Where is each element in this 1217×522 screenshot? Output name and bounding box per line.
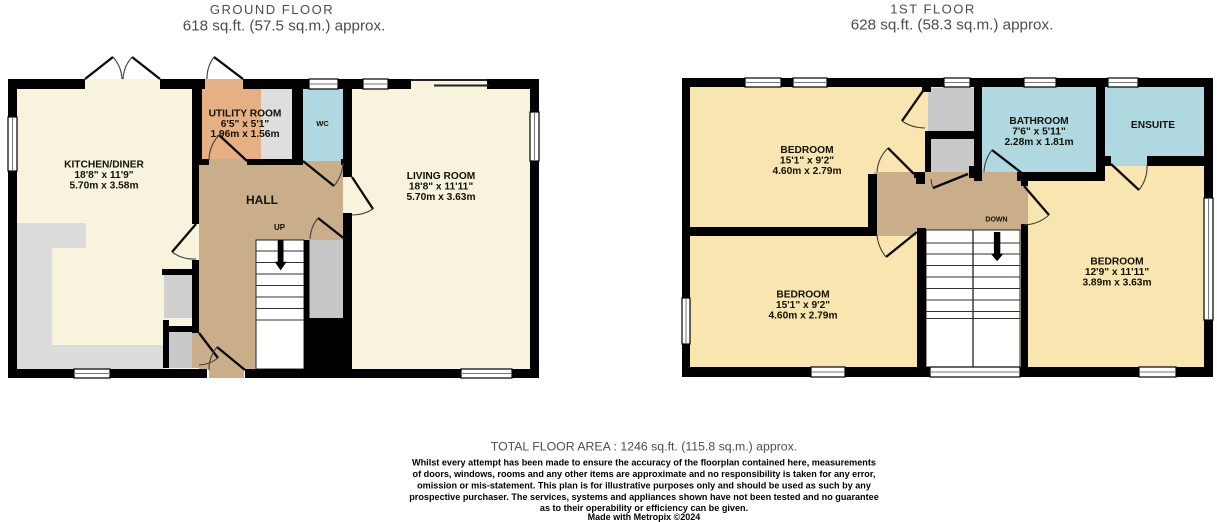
svg-text:15'1" x 9'2": 15'1" x 9'2" xyxy=(780,156,834,167)
svg-text:TOTAL FLOOR AREA : 1246 sq.ft.: TOTAL FLOOR AREA : 1246 sq.ft. (115.8 sq… xyxy=(491,440,797,454)
svg-text:omission or mis-statement. Thi: omission or mis-statement. This plan is … xyxy=(417,481,872,491)
svg-text:1ST FLOOR: 1ST FLOOR xyxy=(890,1,976,16)
svg-text:618 sq.ft. (57.5 sq.m.) approx: 618 sq.ft. (57.5 sq.m.) approx. xyxy=(183,17,386,34)
svg-text:prospective purchaser. The ser: prospective purchaser. The services, sys… xyxy=(409,492,879,502)
svg-text:LIVING ROOM: LIVING ROOM xyxy=(407,171,475,182)
svg-text:WC: WC xyxy=(316,119,329,128)
svg-text:3.89m x 3.63m: 3.89m x 3.63m xyxy=(1082,278,1151,289)
svg-text:HALL: HALL xyxy=(246,193,278,207)
svg-text:BEDROOM: BEDROOM xyxy=(776,290,829,301)
svg-text:BATHROOM: BATHROOM xyxy=(1009,116,1068,127)
svg-text:BEDROOM: BEDROOM xyxy=(1090,257,1143,268)
svg-text:DOWN: DOWN xyxy=(985,217,1007,224)
svg-text:5.70m x 3.58m: 5.70m x 3.58m xyxy=(69,181,138,192)
svg-text:1.96m x 1.56m: 1.96m x 1.56m xyxy=(210,129,279,140)
svg-text:BEDROOM: BEDROOM xyxy=(780,145,833,156)
svg-text:of doors, windows, rooms and a: of doors, windows, rooms and any other i… xyxy=(413,469,876,479)
svg-text:Made with Metropix ©2024: Made with Metropix ©2024 xyxy=(588,512,701,522)
svg-text:5.70m x 3.63m: 5.70m x 3.63m xyxy=(406,192,475,203)
svg-text:18'8" x 11'9": 18'8" x 11'9" xyxy=(74,170,133,181)
svg-text:18'8" x 11'11": 18'8" x 11'11" xyxy=(409,181,474,192)
svg-text:7'6" x 5'11": 7'6" x 5'11" xyxy=(1012,127,1066,138)
svg-text:2.28m x 1.81m: 2.28m x 1.81m xyxy=(1004,137,1073,148)
svg-text:GROUND FLOOR: GROUND FLOOR xyxy=(210,2,334,17)
svg-text:12'9" x 11'11": 12'9" x 11'11" xyxy=(1085,267,1150,278)
svg-text:4.60m x 2.79m: 4.60m x 2.79m xyxy=(772,166,841,177)
svg-text:ENSUITE: ENSUITE xyxy=(1131,120,1175,131)
svg-text:4.60m x 2.79m: 4.60m x 2.79m xyxy=(768,311,837,322)
svg-text:15'1" x 9'2": 15'1" x 9'2" xyxy=(776,300,830,311)
svg-text:UP: UP xyxy=(274,223,286,232)
svg-text:628 sq.ft. (58.3 sq.m.) approx: 628 sq.ft. (58.3 sq.m.) approx. xyxy=(851,17,1054,34)
svg-text:KITCHEN/DINER: KITCHEN/DINER xyxy=(64,160,144,171)
svg-text:Whilst every attempt has been: Whilst every attempt has been made to en… xyxy=(412,458,876,468)
